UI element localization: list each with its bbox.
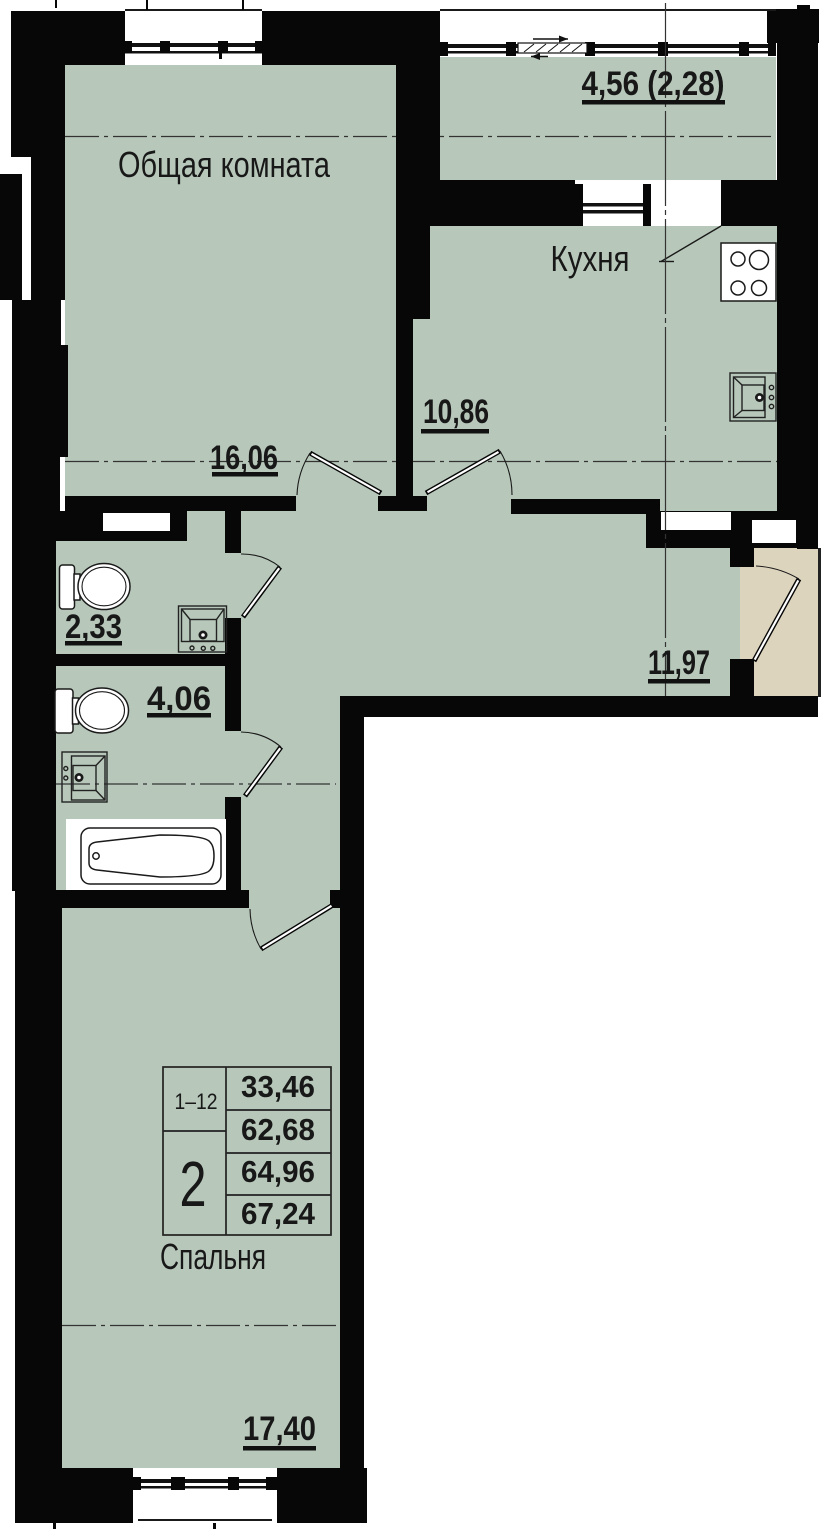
svg-text:33,46: 33,46: [241, 1069, 315, 1104]
svg-text:2: 2: [180, 1148, 207, 1220]
svg-text:4,06: 4,06: [147, 680, 211, 718]
svg-text:64,96: 64,96: [241, 1154, 315, 1189]
svg-text:Кухня: Кухня: [551, 238, 630, 279]
svg-text:62,68: 62,68: [241, 1112, 315, 1147]
svg-text:Общая комната: Общая комната: [118, 144, 331, 185]
svg-text:10,86: 10,86: [423, 393, 489, 431]
svg-text:4,56 (2,28): 4,56 (2,28): [582, 65, 725, 103]
svg-text:67,24: 67,24: [241, 1196, 316, 1231]
svg-text:1–12: 1–12: [175, 1089, 218, 1114]
svg-text:16,06: 16,06: [210, 439, 278, 477]
svg-text:11,97: 11,97: [648, 644, 710, 682]
svg-text:2,33: 2,33: [65, 608, 122, 646]
svg-text:17,40: 17,40: [243, 1410, 316, 1448]
svg-text:Спальня: Спальня: [160, 1236, 266, 1277]
